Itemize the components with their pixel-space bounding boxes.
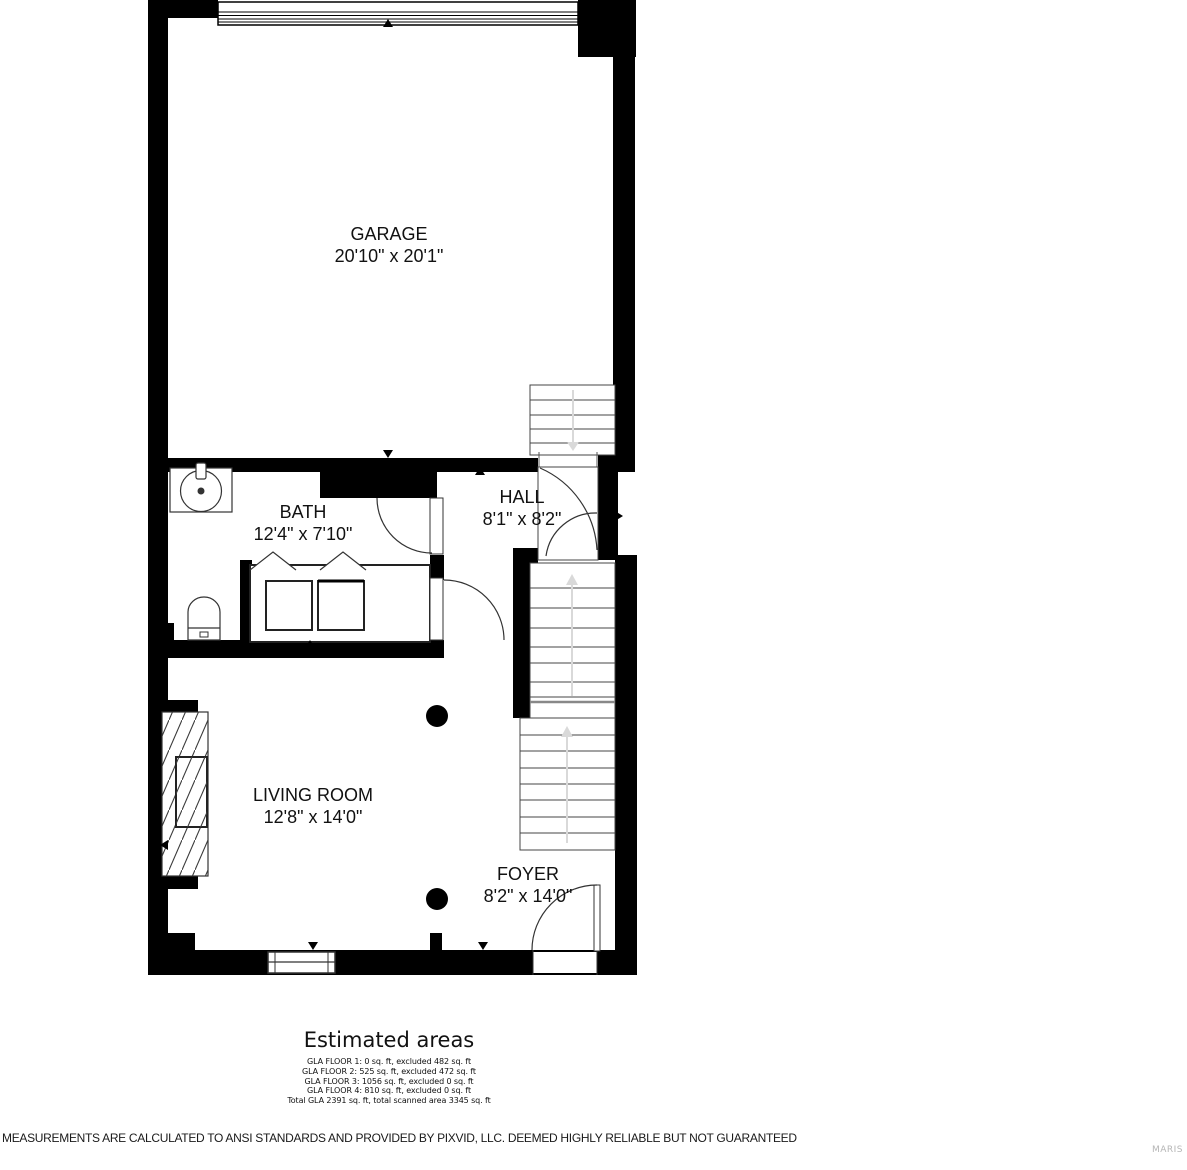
gla-floor-4: GLA FLOOR 4: 810 sq. ft, excluded 0 sq. …: [139, 1086, 639, 1096]
garage-door: [218, 2, 578, 25]
estimated-areas: Estimated areas GLA FLOOR 1: 0 sq. ft, e…: [139, 1028, 639, 1106]
stairs-garage-level: [530, 385, 615, 467]
room-dims-garage: 20'10" x 20'1": [335, 246, 444, 266]
stairs-upper-run: [530, 563, 615, 718]
floorplan-drawing: GARAGE 20'10" x 20'1" BATH 12'4" x 7'10"…: [0, 0, 1187, 1170]
toilet: [188, 597, 220, 640]
gla-floor-1: GLA FLOOR 1: 0 sq. ft, excluded 482 sq. …: [139, 1057, 639, 1067]
room-dims-hall: 8'1" x 8'2": [483, 509, 562, 529]
room-label-foyer: FOYER: [497, 864, 559, 884]
fireplace: [162, 712, 208, 876]
maris-watermark: MARIS: [1152, 1145, 1183, 1155]
vanity-double-sink: [250, 552, 430, 642]
living-room-door: [430, 578, 504, 640]
room-dims-foyer: 8'2" x 14'0": [484, 886, 573, 906]
bath-sink: [170, 463, 232, 512]
posts: [426, 705, 448, 910]
stairs-lower-run: [520, 718, 615, 850]
gla-total: Total GLA 2391 sq. ft, total scanned are…: [139, 1096, 639, 1106]
measurement-disclaimer: MEASUREMENTS ARE CALCULATED TO ANSI STAN…: [2, 1131, 797, 1145]
bath-door: [377, 498, 443, 554]
room-label-bath: BATH: [280, 502, 327, 522]
room-dims-living-room: 12'8" x 14'0": [264, 807, 363, 827]
room-label-hall: HALL: [499, 487, 544, 507]
estimated-areas-title: Estimated areas: [139, 1028, 639, 1052]
room-label-living-room: LIVING ROOM: [253, 785, 373, 805]
floorplan-page: GARAGE 20'10" x 20'1" BATH 12'4" x 7'10"…: [0, 0, 1187, 1170]
room-dims-bath: 12'4" x 7'10": [254, 524, 353, 544]
gla-floor-3: GLA FLOOR 3: 1056 sq. ft, excluded 0 sq.…: [139, 1077, 639, 1087]
room-label-garage: GARAGE: [350, 224, 427, 244]
gla-floor-2: GLA FLOOR 2: 525 sq. ft, excluded 472 sq…: [139, 1067, 639, 1077]
window: [268, 952, 335, 973]
